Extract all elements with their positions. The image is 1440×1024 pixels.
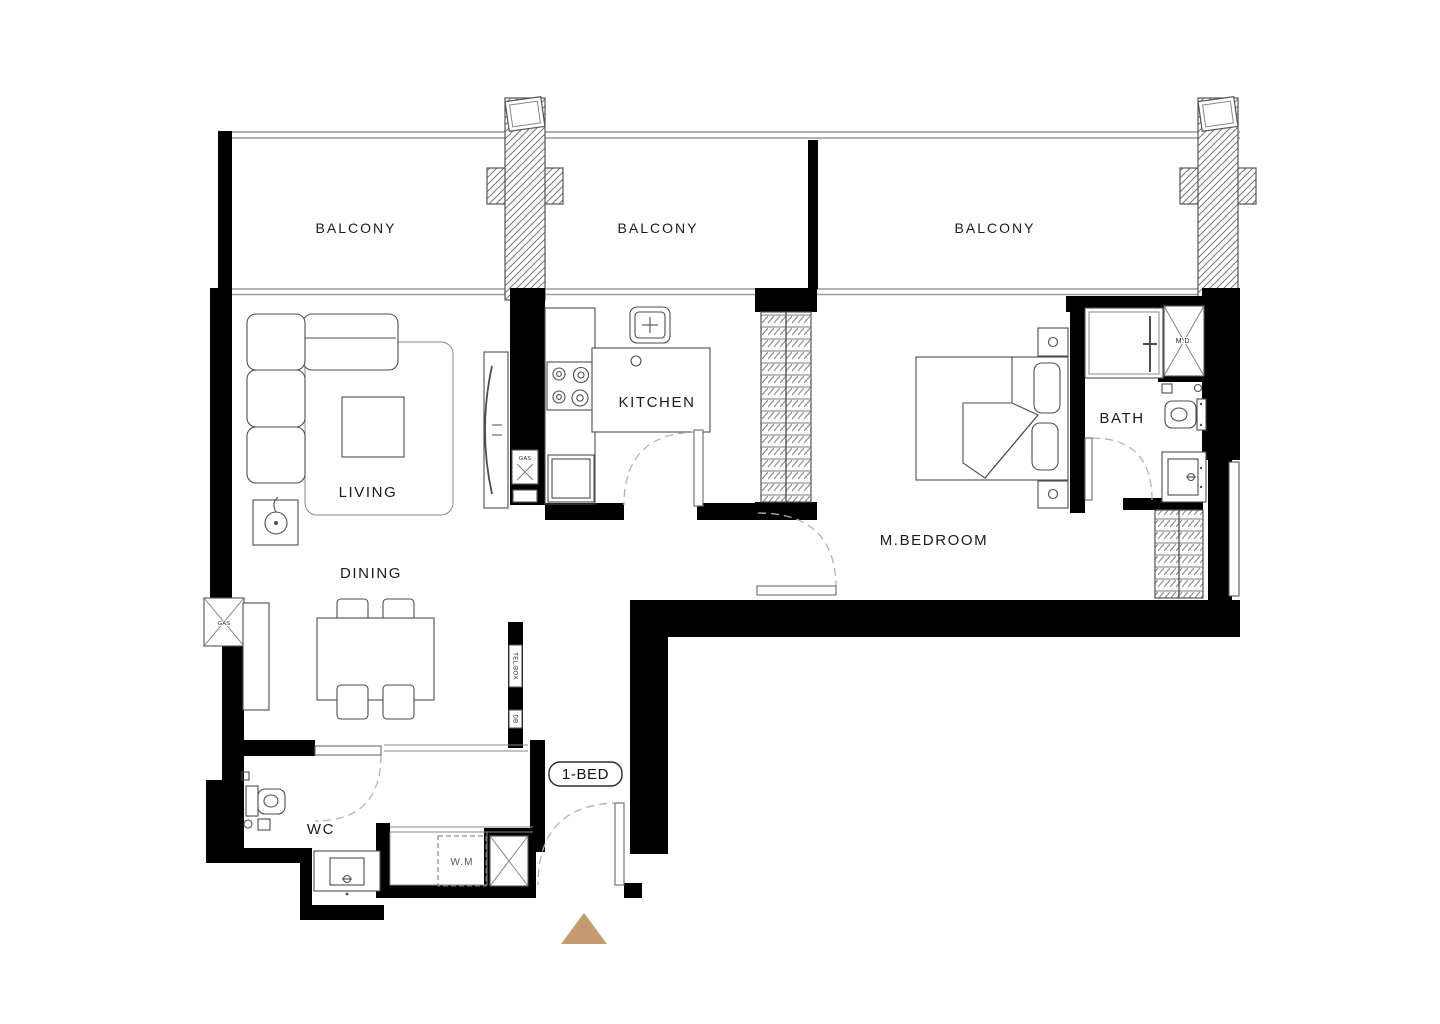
bath-vanity (1162, 452, 1206, 502)
wall-kitchen-bottom-left (545, 503, 624, 520)
tv-screen (485, 366, 492, 494)
sideboard (243, 603, 269, 710)
wall-left-upper (210, 288, 232, 600)
wall-kitchen-bottom-right (697, 503, 757, 520)
bedroom-wardrobe (1155, 510, 1203, 598)
dining-furniture (243, 599, 434, 719)
wall-right-lower (1208, 460, 1232, 600)
kitchen-label: KITCHEN (618, 394, 695, 411)
wall-pantry-bottom (755, 502, 817, 520)
wc-accessory (258, 819, 270, 830)
wall-entry-stub (624, 883, 642, 898)
dining-label: DINING (340, 565, 402, 582)
entry-shaft-box (490, 836, 528, 886)
gas-meter-wall-box: GAS (204, 598, 244, 646)
gas-meter-kitchen-label: GAS (519, 456, 531, 462)
wall-alcove-bottom (310, 905, 384, 920)
wall-hall-bottom-band (632, 600, 1240, 637)
dining-chair (337, 685, 368, 719)
unit-badge: 1-BED (549, 762, 622, 786)
fridge (548, 455, 594, 502)
doors (315, 430, 1152, 885)
column-right (1180, 97, 1256, 300)
wall-left-step (206, 780, 222, 863)
column-left (487, 97, 563, 300)
wall-pantry-top (755, 288, 817, 312)
unit-badge-label: 1-BED (562, 766, 609, 783)
tv-unit (484, 352, 508, 508)
floorplan-svg: GAS GAS M.D. TEL.BOX DB (0, 0, 1440, 1024)
bath-toilet (1162, 384, 1206, 430)
bedroom-furniture (916, 328, 1068, 508)
wall-entry-vertical (630, 600, 668, 854)
floorplan-canvas: GAS GAS M.D. TEL.BOX DB (0, 0, 1440, 1024)
dining-table (317, 618, 434, 700)
walls (206, 131, 1240, 920)
gas-meter-kitchen-box: GAS (512, 450, 538, 502)
entrance-door (538, 803, 624, 885)
kitchen-island (592, 348, 710, 432)
living-furniture (247, 314, 508, 545)
bathtub (1085, 308, 1163, 378)
wc-toilet (246, 786, 285, 816)
wall-wc-top (222, 740, 315, 756)
bath-door (1085, 438, 1152, 500)
mechanical-duct-label: M.D. (1176, 338, 1192, 345)
balcony-railing (225, 132, 1240, 138)
window-wall-line (228, 289, 1205, 295)
lamp-side-table (253, 497, 298, 545)
kitchen-door (624, 430, 703, 506)
living-label: LIVING (339, 484, 398, 501)
wall-wc-right (530, 740, 545, 852)
bath-label: BATH (1099, 410, 1144, 427)
master-bedroom-label: M.BEDROOM (880, 532, 989, 549)
db-slot: DB (509, 710, 522, 728)
wall-wc-bottom (222, 848, 312, 863)
db-label: DB (512, 715, 518, 724)
dining-chair (383, 685, 414, 719)
mechanical-duct-box: M.D. (1164, 306, 1204, 376)
wall-right-upper (1202, 288, 1240, 460)
kitchen-sink (630, 307, 670, 343)
entry-marker-icon (561, 913, 607, 944)
stove (547, 362, 593, 410)
hall-closet (761, 312, 811, 502)
wc-label: WC (307, 821, 335, 838)
wc-door (315, 745, 528, 821)
wall-balcony-left-end (218, 131, 232, 295)
balcony-3-label: BALCONY (955, 220, 1036, 236)
wc-roll-holder (244, 820, 252, 828)
nightstand-bottom (1038, 481, 1068, 508)
pillow (1034, 363, 1060, 413)
wall-balcony-divider (808, 140, 818, 289)
balcony-1-label: BALCONY (316, 220, 397, 236)
right-wall-recess (1229, 462, 1239, 596)
tel-box-slot: TEL.BOX (509, 645, 522, 687)
coffee-table (342, 397, 404, 457)
bedroom-door (757, 513, 836, 595)
wc-vanity (314, 851, 380, 895)
balcony-2-label: BALCONY (618, 220, 699, 236)
washing-machine-label: W.M (451, 857, 474, 868)
pillow (1032, 423, 1058, 470)
nightstand-top (1038, 328, 1068, 356)
gas-meter-wall-label: GAS (218, 621, 230, 627)
wall-bath-partition (1070, 303, 1085, 513)
tel-box-label: TEL.BOX (512, 652, 518, 679)
